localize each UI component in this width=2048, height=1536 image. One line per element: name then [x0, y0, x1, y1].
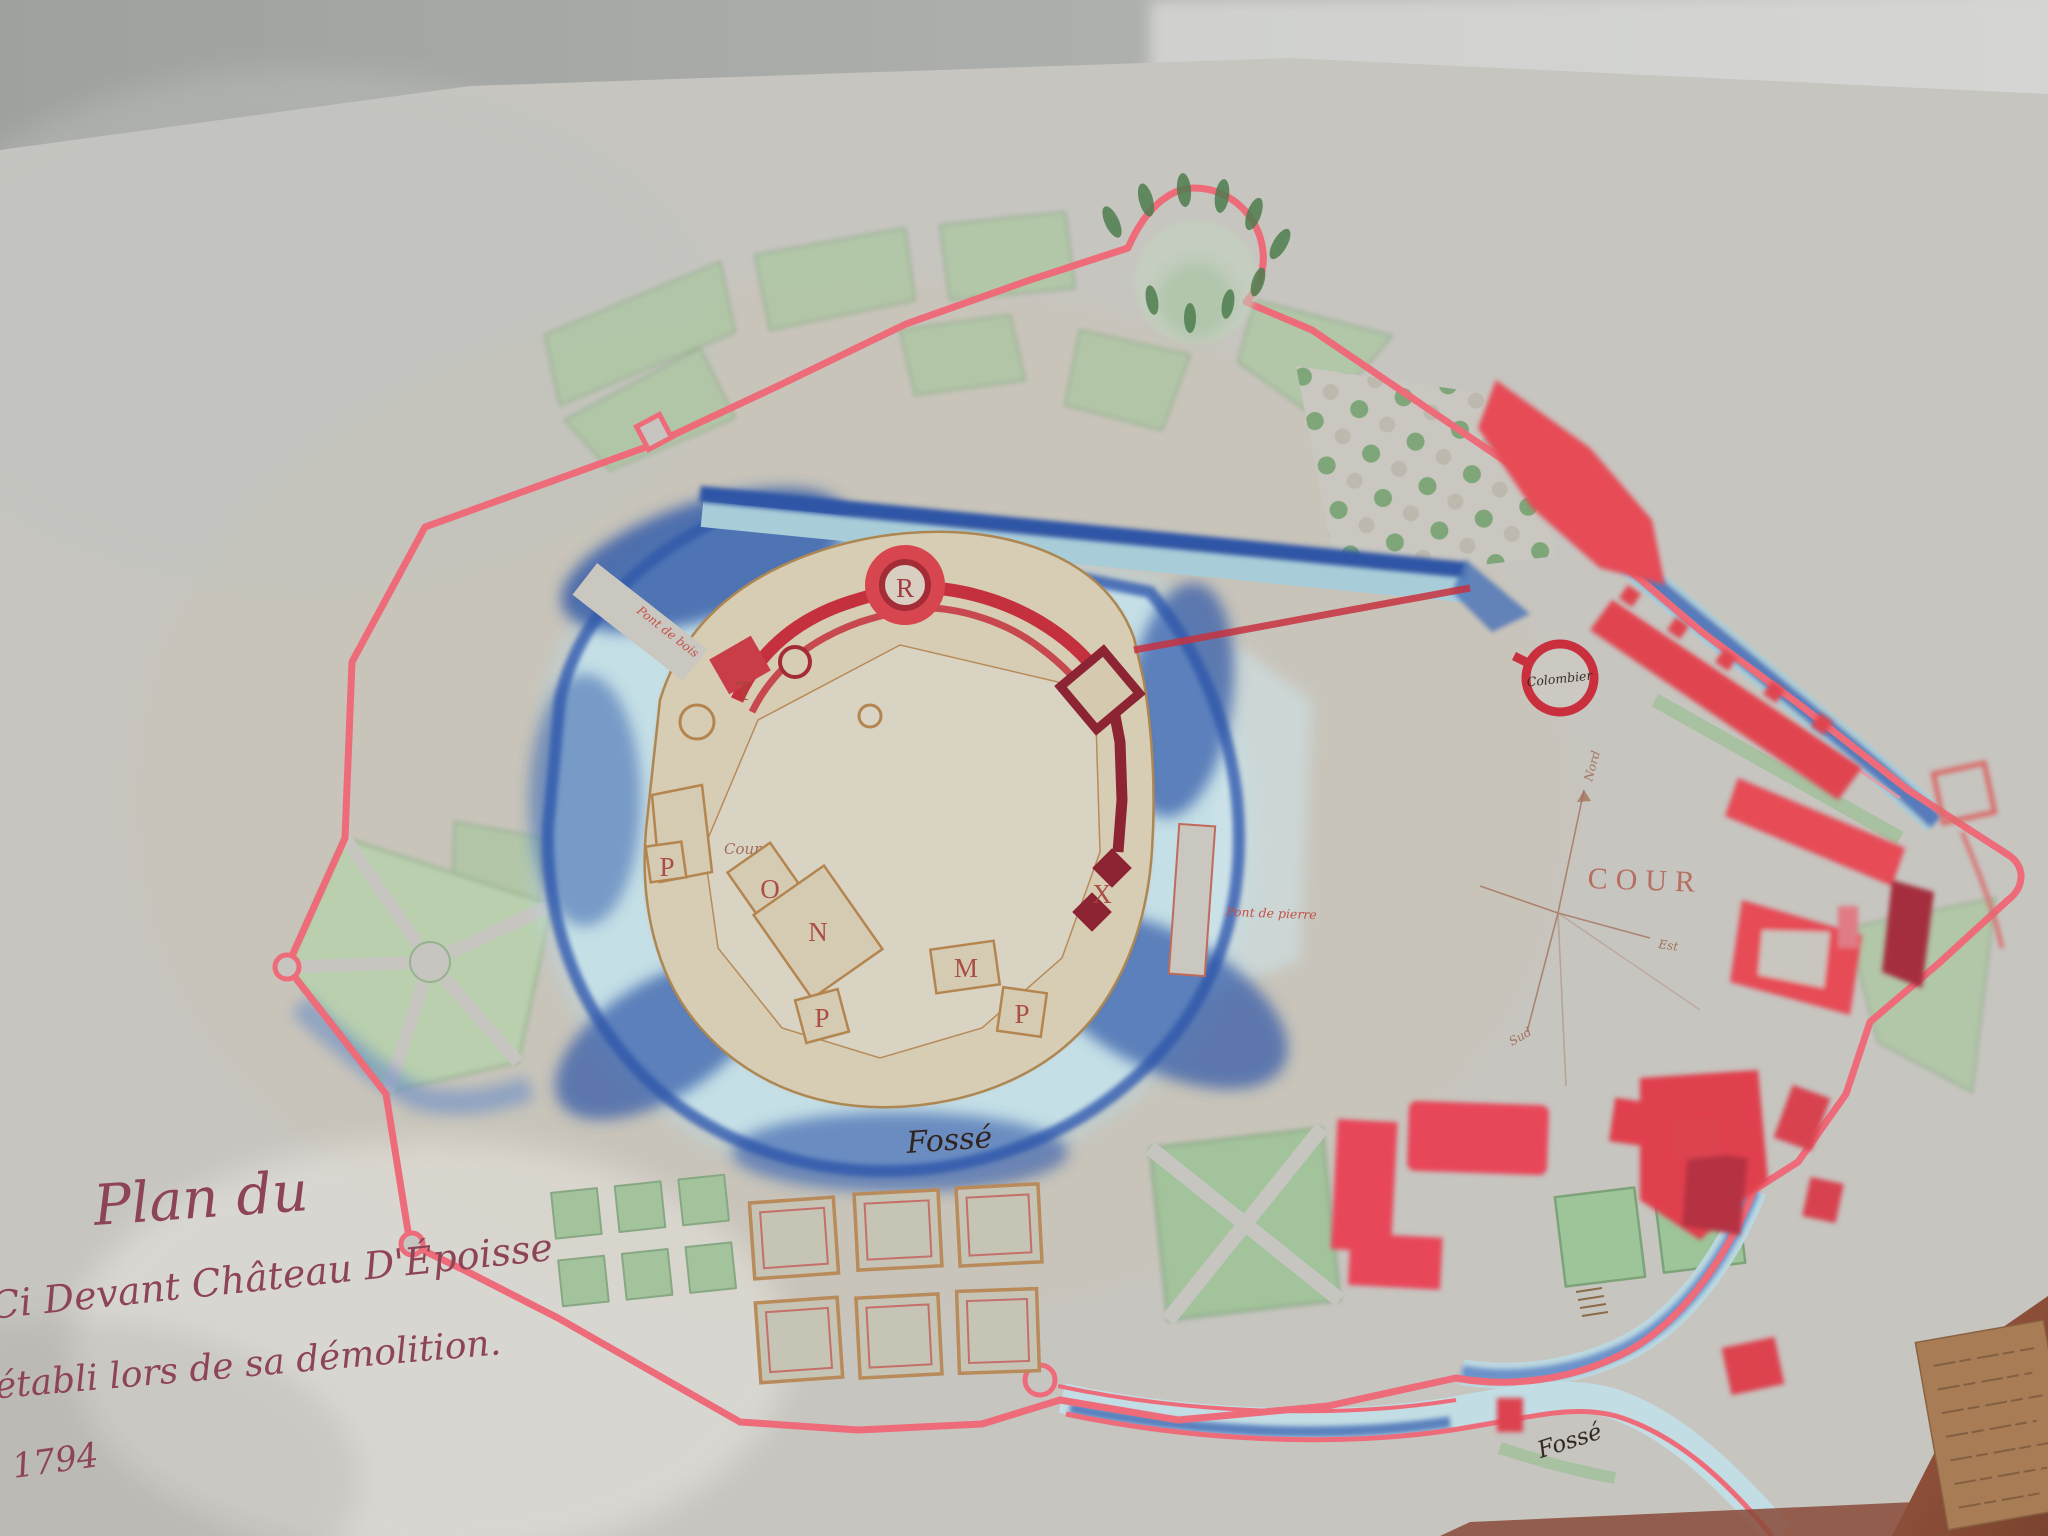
court-well [859, 705, 881, 727]
letter-m: M [954, 953, 978, 983]
south-rect-building [1407, 1101, 1549, 1176]
compass-east-label: Est [1657, 937, 1680, 954]
se-small-1 [1609, 1098, 1651, 1147]
letter-x: X [1092, 879, 1112, 909]
sluice-block [1497, 1398, 1523, 1432]
letter-n: N [808, 917, 828, 947]
se-small-2 [1670, 1115, 1724, 1160]
label-castle-court: Cour [724, 840, 762, 858]
letter-p-sw: P [814, 1003, 829, 1033]
lawn-5 [900, 315, 1025, 395]
letter-p-west: P [659, 852, 674, 882]
letter-t: T [736, 676, 753, 706]
turret-ring-west [275, 955, 299, 979]
se-cluster-dark [1682, 1150, 1748, 1235]
plan-drawing: R T P O N M P P X Cour [0, 0, 2048, 1536]
bastion-center [410, 942, 450, 982]
cross-garden [1150, 1128, 1340, 1320]
label-pont-de-pierre: Pont de pierre [1225, 904, 1317, 922]
letter-r: R [896, 573, 914, 603]
letter-p-se: P [1014, 999, 1029, 1029]
small-round-tower [780, 647, 810, 677]
label-fosse-moat: Fossé [904, 1120, 993, 1161]
label-cour: COUR [1587, 862, 1703, 899]
pink-block-east [1838, 906, 1858, 948]
photo-of-plan: R T P O N M P P X Cour [0, 0, 2048, 1536]
grove-inner [1158, 262, 1234, 338]
corner-tower-nw [680, 705, 714, 739]
letter-o: O [760, 874, 780, 904]
